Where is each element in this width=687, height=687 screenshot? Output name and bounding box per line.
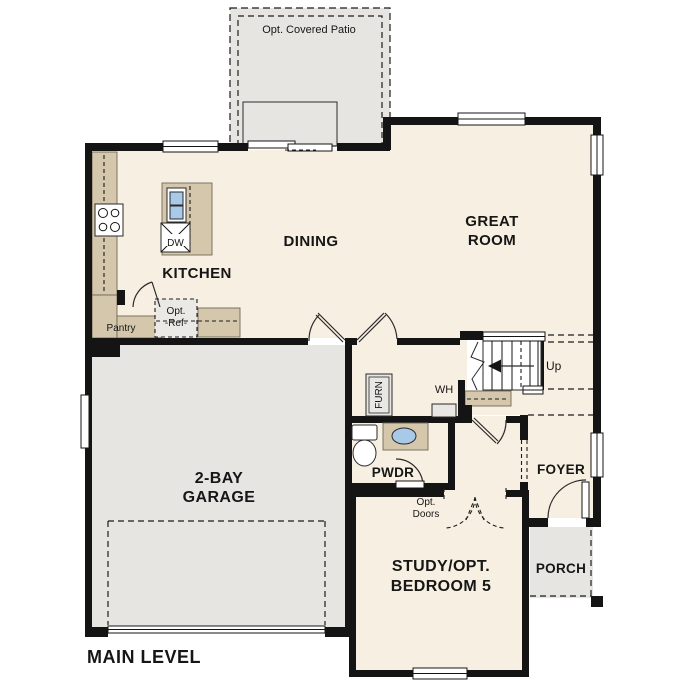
great-room-floor <box>383 124 593 338</box>
porch-label: PORCH <box>536 561 586 576</box>
study-window <box>413 668 467 679</box>
plan-title: MAIN LEVEL <box>87 647 201 667</box>
opt-doors-label-2: Doors <box>413 509 440 520</box>
dining-label: DINING <box>284 233 339 250</box>
study-label-2: BEDROOM 5 <box>391 578 492 595</box>
foyer-cased-opening <box>520 440 528 482</box>
great-room-label-1: GREAT <box>465 213 518 230</box>
water-heater-label: WH <box>435 384 453 396</box>
hallway-floor <box>455 416 520 497</box>
dishwasher-label: DW <box>167 238 184 249</box>
great-room-label-2: ROOM <box>468 232 516 249</box>
garage-label-2: GARAGE <box>183 489 256 506</box>
study-label-1: STUDY/OPT. <box>392 558 490 575</box>
kitchen-dining-floor <box>92 150 390 338</box>
patio-label: Opt. Covered Patio <box>262 24 356 36</box>
great-room-top-window <box>458 113 525 125</box>
great-room-right-window <box>591 135 603 175</box>
garage-door <box>108 626 325 633</box>
toilet-icon <box>352 425 377 466</box>
railing-bottom <box>523 386 543 394</box>
pantry-label: Pantry <box>107 323 136 334</box>
furnace-label: FURN <box>374 381 385 409</box>
railing-top <box>483 332 545 341</box>
foyer-label: FOYER <box>537 462 585 477</box>
vanity-sink-icon <box>383 423 428 450</box>
powder-label: PWDR <box>372 465 414 480</box>
floor-plan-canvas: Opt. Covered Patio KITCHEN DINING GREAT … <box>0 0 687 687</box>
island-sink-icon <box>167 188 186 222</box>
counter-right-of-ref <box>198 308 240 337</box>
water-heater-icon <box>432 404 456 417</box>
kitchen-label: KITCHEN <box>162 265 231 282</box>
garage-label-1: 2-BAY <box>195 470 244 487</box>
opt-doors-label-1: Opt. <box>417 497 436 508</box>
opt-ref-label-2: -Ref- <box>165 318 187 329</box>
stairs-up-label: Up <box>546 359 562 373</box>
opt-ref-label-1: Opt. <box>167 306 186 317</box>
cooktop-icon <box>95 204 123 236</box>
garage-side-door <box>81 395 89 448</box>
floor-plan: Opt. Covered Patio KITCHEN DINING GREAT … <box>0 0 687 687</box>
kitchen-window <box>163 141 218 152</box>
foyer-right-window <box>591 433 603 477</box>
corridor-floor <box>541 338 593 415</box>
